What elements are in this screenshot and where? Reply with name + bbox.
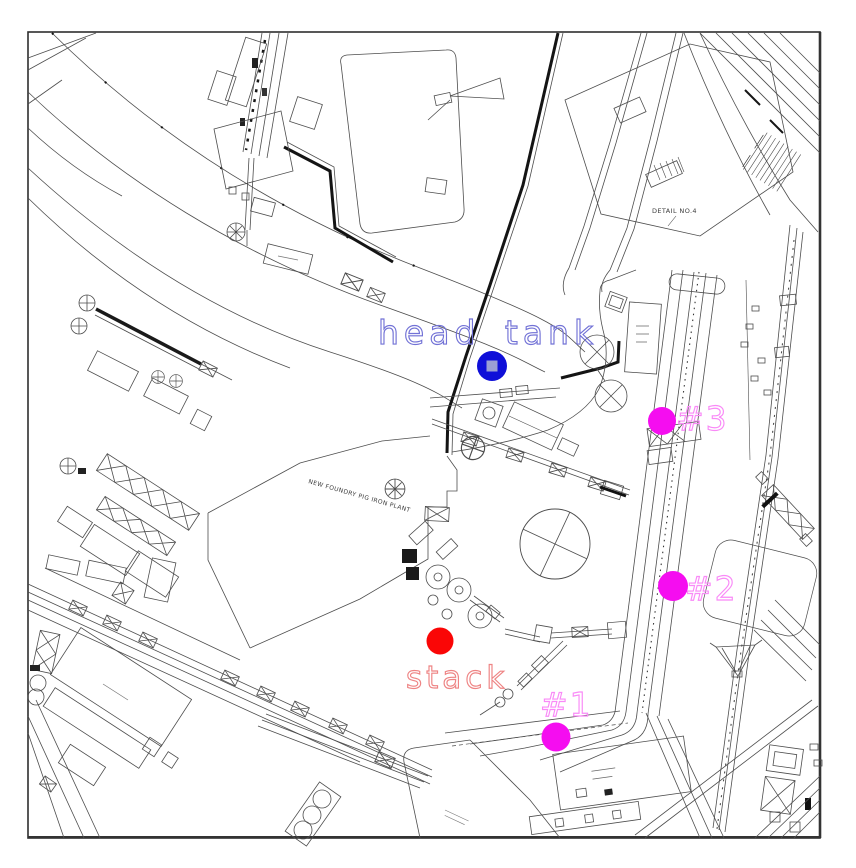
sample-point-3-label: #3 xyxy=(676,399,729,438)
sample-point-1-dot xyxy=(542,723,571,752)
sample-point-1-label: #1 xyxy=(540,685,593,724)
detail-note-text: DETAIL NO.4 xyxy=(652,207,697,215)
sample-point-2-dot xyxy=(658,571,688,601)
annotated-site-plan-image: DETAIL NO.4 NEW FOUNDRY PIG IRON PLANT h… xyxy=(0,0,856,868)
head-tank-dot-center-mark xyxy=(487,361,498,372)
head-tank-label: head tank xyxy=(378,313,598,352)
stack-label: stack xyxy=(406,660,508,696)
sample-point-2-label: #2 xyxy=(685,569,738,608)
stack-dot xyxy=(427,628,454,655)
site-plan-drawing: DETAIL NO.4 NEW FOUNDRY PIG IRON PLANT h… xyxy=(0,0,856,868)
sample-point-3-dot xyxy=(648,407,676,435)
